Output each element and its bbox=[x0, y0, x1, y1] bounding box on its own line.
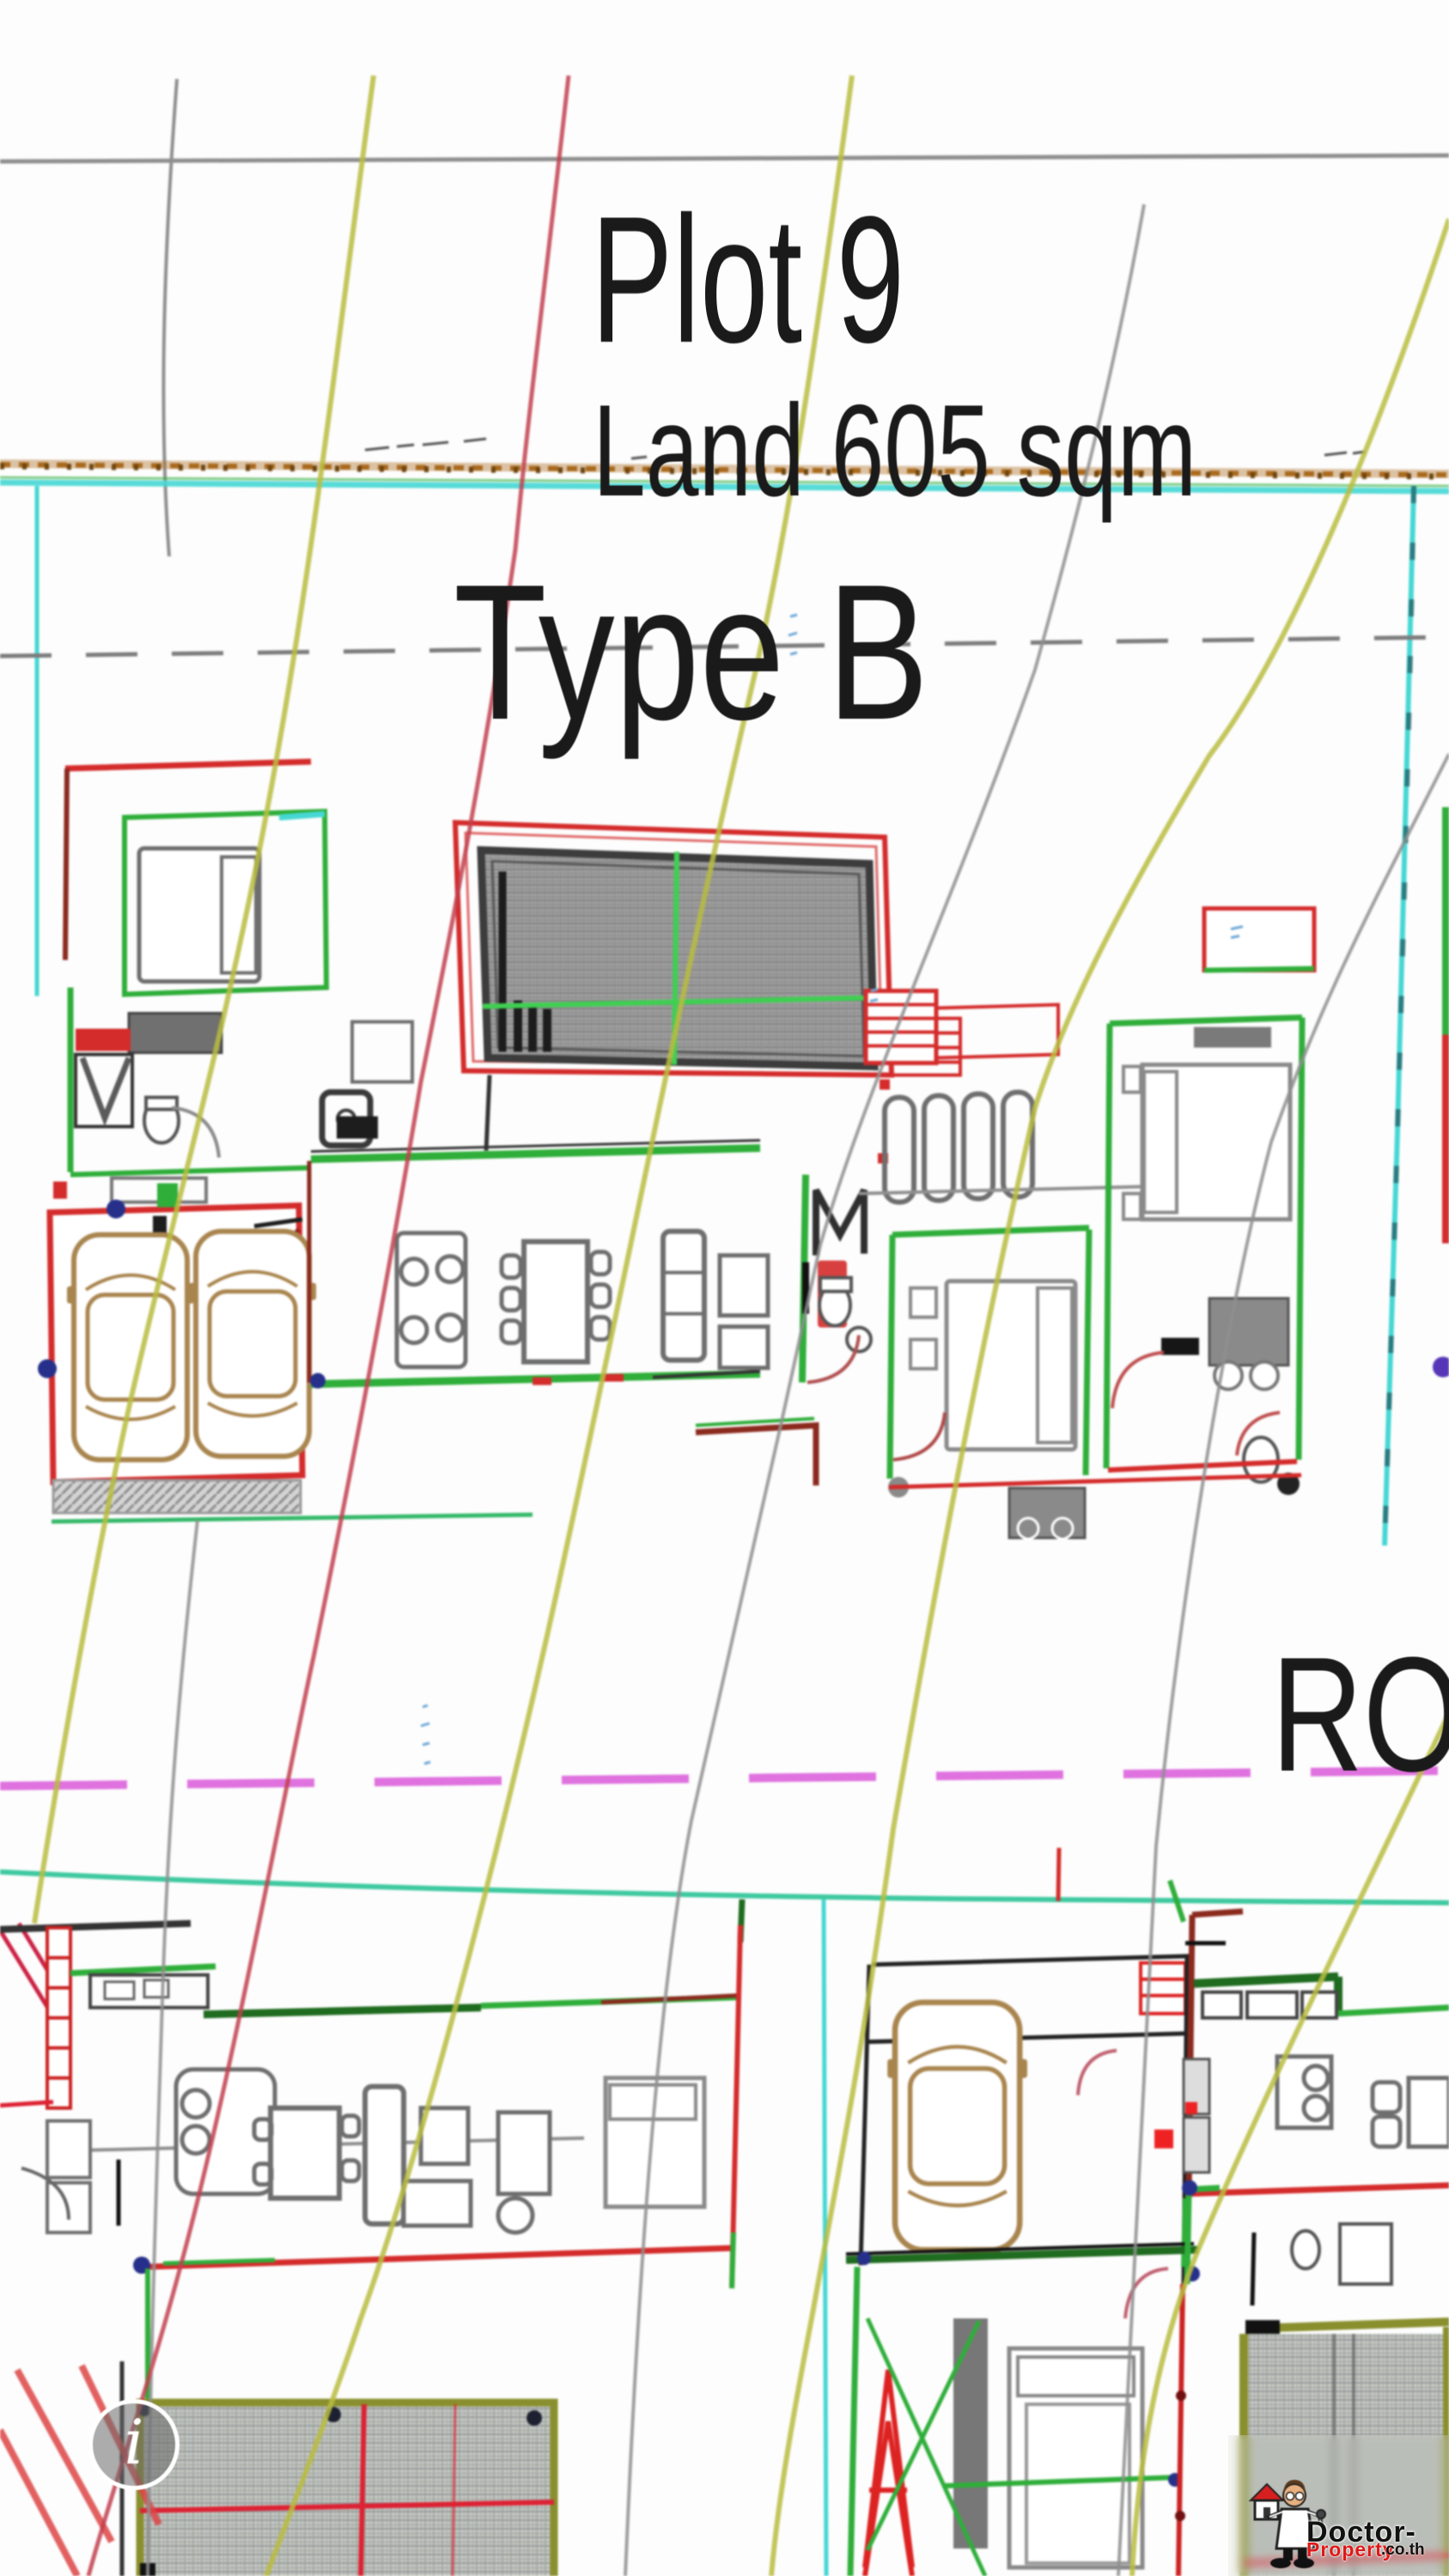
road-label: RO bbox=[1271, 1621, 1449, 1808]
info-button[interactable]: i bbox=[88, 2399, 180, 2490]
driveway-hatch bbox=[53, 1480, 301, 1513]
bathroom-center bbox=[806, 1190, 871, 1382]
bedroom-left bbox=[65, 762, 370, 1202]
logo-text-suffix: .co.th bbox=[1381, 2541, 1425, 2560]
house-type-b bbox=[38, 762, 1449, 1539]
car-icon bbox=[67, 1235, 194, 1460]
site-plan-image: Plot 9 Land 605 sqm Type B RO i Doctor- … bbox=[0, 0, 1449, 2576]
info-icon: i bbox=[124, 2411, 143, 2473]
swimming-pool bbox=[481, 850, 874, 1151]
plot-land-area: Land 605 sqm bbox=[593, 376, 1196, 526]
lower-house-right bbox=[1182, 1911, 1449, 2306]
carport-car-icon bbox=[887, 2002, 1027, 2250]
bedroom-middle bbox=[888, 1219, 1089, 1539]
plot-title: Plot 9 bbox=[591, 176, 904, 384]
car-icon bbox=[189, 1231, 316, 1456]
lower-house-middle bbox=[846, 1880, 1200, 2576]
pool-lower-left bbox=[137, 2403, 554, 2576]
road-centerline bbox=[0, 1771, 1449, 1786]
house-type-label: Type B bbox=[454, 541, 928, 763]
